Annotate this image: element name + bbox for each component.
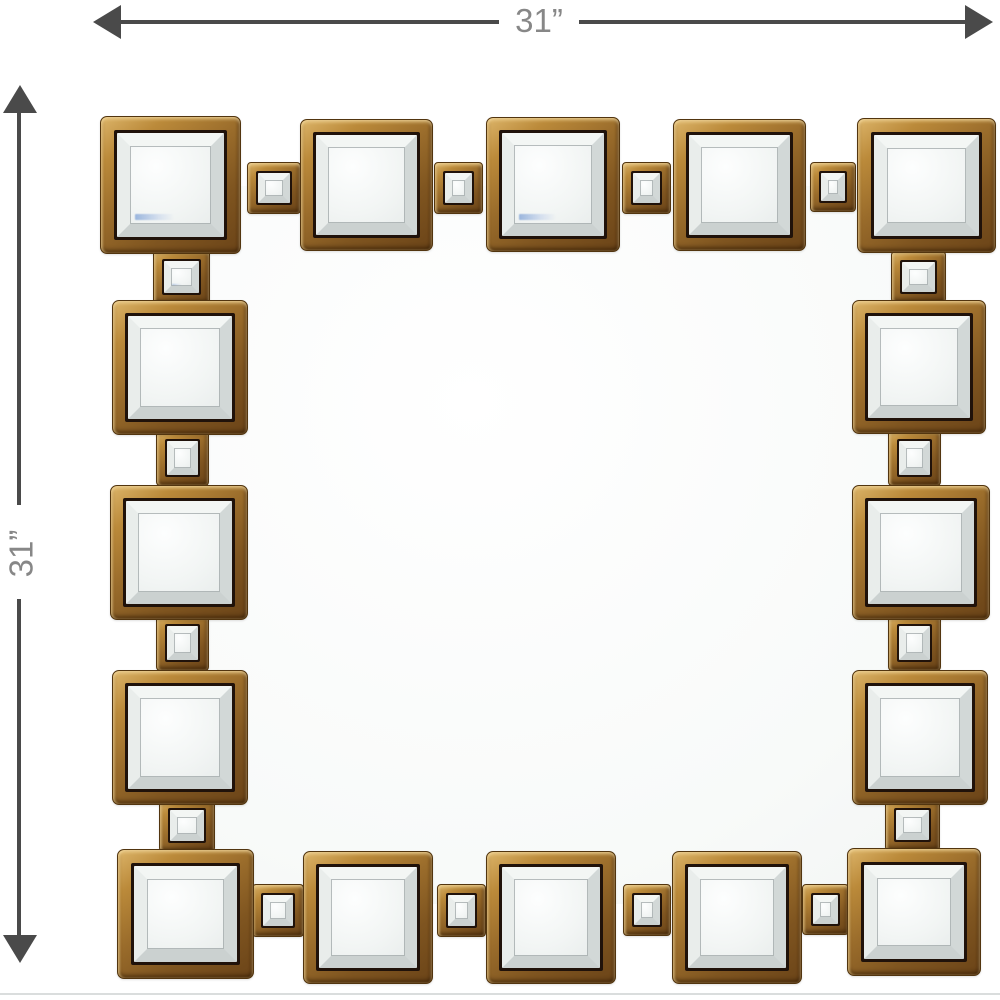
mirror-glass [174, 633, 191, 653]
mirror-glass [701, 147, 778, 223]
photo-bottom-edge [0, 993, 1000, 995]
frame-square [673, 119, 806, 251]
glass-reflection [519, 214, 556, 220]
mirror-bevel [258, 173, 290, 203]
mirror-glass [903, 817, 922, 833]
mirror-glass [140, 328, 220, 407]
frame-square [672, 851, 802, 984]
mirror-bevel [688, 867, 786, 968]
connector-square [810, 162, 856, 212]
arrow-left-icon [93, 5, 121, 39]
connector-square [434, 162, 483, 214]
mirror-glass [331, 879, 405, 956]
mirror-glass [880, 513, 962, 592]
mirror-bevel [864, 865, 964, 959]
mirror-bevel [167, 441, 198, 475]
frame-square [486, 851, 616, 984]
height-dimension-line [17, 111, 21, 505]
mirror-glass [171, 268, 192, 286]
mirror-bevel [502, 133, 604, 236]
mirror-bevel [902, 262, 935, 292]
mirror-glass [906, 633, 923, 653]
mirror-bevel [868, 501, 974, 604]
mirror-glass [452, 180, 465, 196]
mirror-bevel [813, 895, 838, 924]
frame-square [857, 118, 996, 253]
mirror-glass [700, 879, 774, 956]
mirror-bevel [868, 316, 970, 418]
mirror-bevel [263, 895, 293, 926]
frame-square [112, 670, 248, 805]
frame-square [486, 117, 620, 252]
connector-square [437, 884, 486, 937]
mirror-glass [909, 269, 928, 285]
width-dimension-line [119, 20, 499, 24]
mirror-glass [174, 448, 191, 468]
connector-square [891, 251, 946, 303]
mirror-bevel [821, 173, 845, 201]
mirror-bevel [899, 626, 930, 660]
mirror-bevel [117, 133, 224, 237]
connector-square [247, 162, 301, 214]
glass-reflection [172, 284, 182, 285]
mirror-bevel [134, 866, 237, 962]
mirror-glass [514, 145, 592, 224]
mirror-bevel [633, 173, 660, 203]
connector-square [159, 799, 215, 852]
mirror-glass [880, 328, 958, 406]
mirror-glass [265, 180, 283, 196]
mirror-bevel [126, 501, 232, 604]
connector-square [885, 799, 940, 851]
mirror-glass [880, 698, 960, 777]
connector-square [622, 162, 671, 214]
mirror-bevel [164, 261, 199, 293]
mirror-bevel [445, 173, 472, 203]
mirror-glass [641, 902, 653, 918]
mirror-bevel [868, 686, 972, 789]
connector-square [802, 884, 849, 935]
width-label: 31” [497, 4, 581, 37]
connector-square [252, 884, 304, 937]
mirror-glass [514, 879, 588, 956]
frame-square [117, 849, 254, 979]
mirror-glass [130, 146, 211, 224]
frame-square [100, 116, 241, 254]
frame-square [852, 485, 990, 620]
glass-reflection [135, 214, 174, 220]
mirror-glass [270, 902, 286, 919]
height-dimension-line [17, 599, 21, 937]
mirror-glass [640, 180, 653, 196]
connector-square [623, 884, 671, 936]
frame-square [847, 848, 981, 976]
frame-square [852, 670, 988, 805]
mirror-glass [138, 513, 220, 592]
connector-square [888, 430, 941, 486]
mirror-glass [147, 879, 224, 949]
mirror-bevel [128, 316, 232, 419]
mirror-bevel [170, 810, 204, 841]
arrow-down-icon [3, 935, 37, 963]
mirror-glass [177, 817, 197, 834]
central-mirror-glass [176, 186, 916, 904]
mirror-bevel [167, 626, 198, 660]
connector-square [153, 250, 210, 304]
mirror-glass [455, 902, 468, 919]
frame-square [852, 300, 986, 434]
mirror-bevel [448, 895, 475, 926]
mirror-bevel [502, 867, 600, 968]
mirror-glass [887, 148, 966, 223]
mirror-bevel [128, 686, 232, 789]
mirror-glass [906, 448, 923, 468]
mirror-bevel [316, 135, 417, 235]
mirror-bevel [689, 135, 790, 235]
mirror-bevel [896, 810, 929, 840]
mirror-glass [140, 698, 220, 777]
mirror-glass [828, 180, 838, 194]
width-dimension-line [579, 20, 967, 24]
mirror-bevel [874, 135, 979, 236]
frame-square [300, 119, 433, 251]
mirror-bevel [634, 895, 660, 925]
product-image: 31” 31” [0, 0, 1000, 1000]
mirror-glass [877, 878, 951, 946]
frame-square [112, 300, 248, 435]
connector-square [156, 615, 209, 671]
mirror-glass [328, 147, 405, 223]
frame-square [303, 851, 433, 984]
frame-square [110, 485, 248, 620]
connector-square [888, 615, 941, 671]
height-label: 31” [5, 529, 38, 577]
connector-square [156, 430, 209, 486]
mirror-bevel [319, 867, 417, 968]
mirror-bevel [899, 441, 930, 475]
mirror-glass [820, 902, 831, 917]
arrow-right-icon [965, 5, 993, 39]
arrow-up-icon [3, 85, 37, 113]
